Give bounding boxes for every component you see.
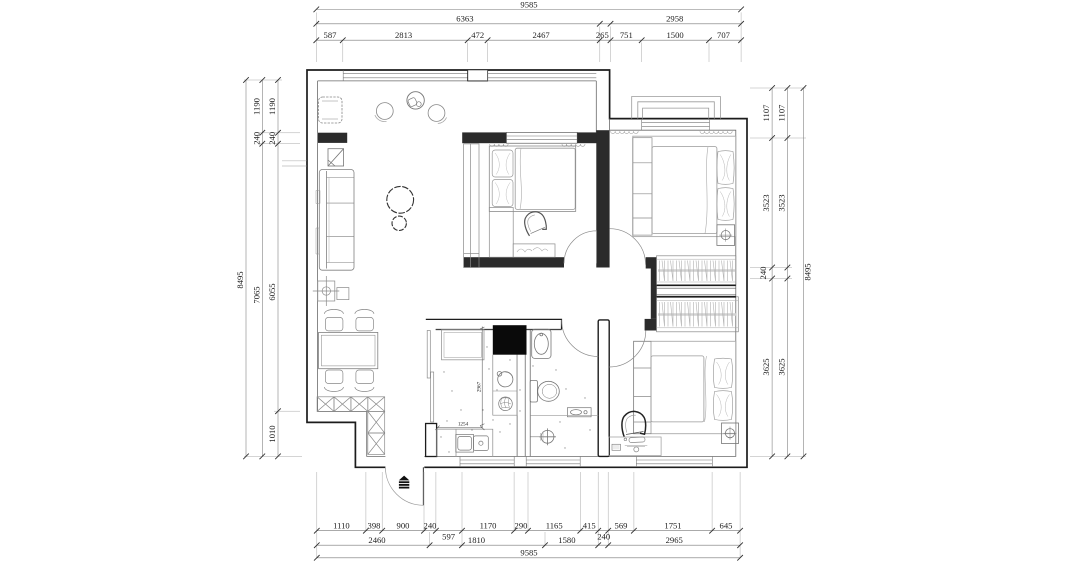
svg-text:240: 240 [424, 520, 437, 530]
svg-text:1165: 1165 [546, 520, 563, 530]
svg-text:900: 900 [397, 520, 410, 530]
svg-text:6055: 6055 [267, 283, 277, 300]
svg-text:8495: 8495 [235, 271, 245, 288]
svg-text:1751: 1751 [664, 520, 681, 530]
svg-text:2460: 2460 [368, 535, 385, 545]
svg-text:1190: 1190 [251, 98, 261, 115]
svg-text:2965: 2965 [666, 535, 683, 545]
svg-text:1107: 1107 [761, 104, 771, 122]
svg-text:9585: 9585 [520, 0, 537, 9]
svg-text:415: 415 [583, 520, 596, 530]
svg-text:3625: 3625 [776, 358, 786, 375]
svg-text:1810: 1810 [468, 535, 485, 545]
svg-text:1254: 1254 [458, 422, 469, 428]
svg-text:751: 751 [620, 30, 633, 40]
svg-text:240: 240 [251, 132, 261, 145]
svg-text:587: 587 [324, 30, 338, 40]
svg-text:2813: 2813 [395, 30, 412, 40]
svg-text:7065: 7065 [251, 286, 261, 303]
svg-text:6363: 6363 [456, 14, 473, 24]
svg-text:9585: 9585 [520, 548, 537, 558]
svg-text:1500: 1500 [667, 30, 684, 40]
svg-text:707: 707 [717, 30, 731, 40]
svg-text:1170: 1170 [480, 520, 497, 530]
svg-text:398: 398 [368, 520, 381, 530]
svg-text:265: 265 [596, 30, 609, 40]
svg-text:3523: 3523 [761, 194, 771, 211]
svg-text:8495: 8495 [803, 263, 813, 280]
svg-text:240: 240 [758, 267, 768, 280]
svg-text:1010: 1010 [267, 425, 277, 442]
svg-text:2967: 2967 [477, 381, 483, 392]
svg-text:2467: 2467 [533, 30, 551, 40]
svg-text:645: 645 [720, 520, 733, 530]
svg-text:3523: 3523 [776, 194, 786, 211]
svg-text:1190: 1190 [267, 98, 277, 115]
svg-text:1110: 1110 [333, 520, 350, 530]
svg-text:597: 597 [442, 531, 456, 541]
svg-text:290: 290 [515, 520, 528, 530]
svg-text:1580: 1580 [558, 535, 575, 545]
svg-text:240: 240 [267, 132, 277, 145]
svg-text:240: 240 [597, 531, 610, 541]
svg-text:569: 569 [615, 520, 628, 530]
svg-text:3625: 3625 [761, 358, 771, 375]
svg-text:1107: 1107 [776, 104, 786, 122]
svg-text:472: 472 [471, 30, 484, 40]
svg-text:2958: 2958 [666, 14, 683, 24]
